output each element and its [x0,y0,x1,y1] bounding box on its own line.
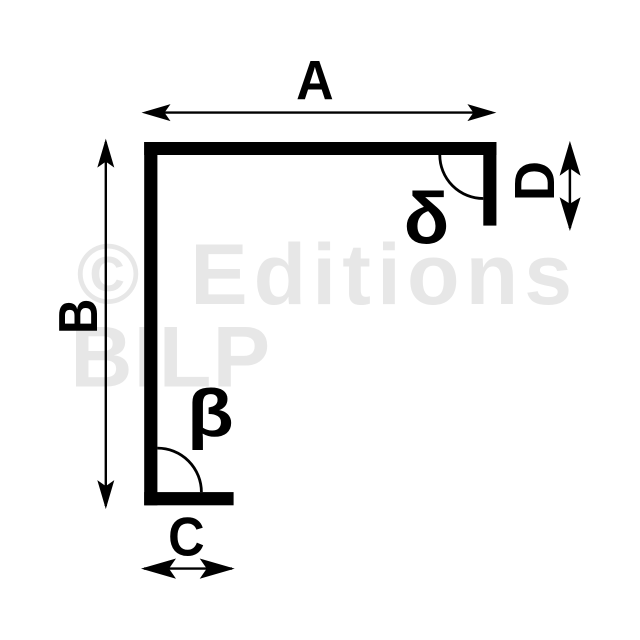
svg-text:C: C [168,506,204,567]
svg-text:δ: δ [404,177,450,258]
svg-text:A: A [296,50,334,112]
svg-text:B: B [49,299,110,334]
svg-text:D: D [503,161,566,201]
svg-text:β: β [187,376,234,450]
